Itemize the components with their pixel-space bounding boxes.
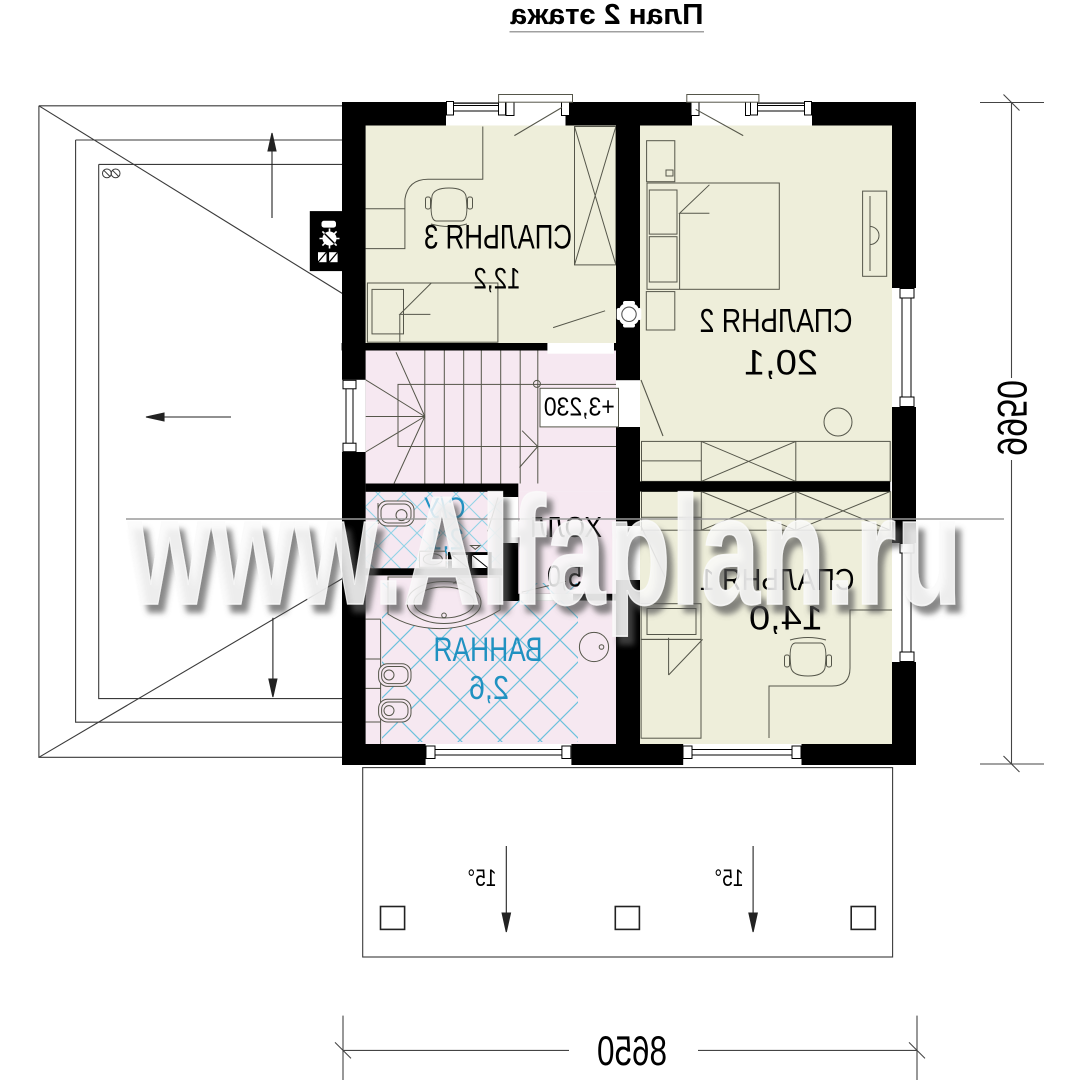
svg-text:8650: 8650 bbox=[597, 1027, 667, 1074]
svg-text:СПАЛЬНЯ 3: СПАЛЬНЯ 3 bbox=[424, 219, 572, 257]
svg-text:15°: 15° bbox=[715, 865, 744, 892]
svg-text:15°: 15° bbox=[468, 865, 497, 892]
svg-text:9950: 9950 bbox=[989, 380, 1036, 456]
svg-text:2,6: 2,6 bbox=[469, 669, 509, 706]
svg-text:12,2: 12,2 bbox=[474, 263, 521, 296]
svg-text:СПАЛЬНЯ 2: СПАЛЬНЯ 2 bbox=[700, 302, 853, 339]
svg-text:План 2 этажа: План 2 этажа bbox=[510, 0, 704, 31]
svg-text:20,1: 20,1 bbox=[744, 344, 818, 383]
svg-text:+3,230: +3,230 bbox=[544, 392, 615, 422]
svg-text:www.Alfaplan.ru: www.Alfaplan.ru bbox=[127, 464, 962, 637]
